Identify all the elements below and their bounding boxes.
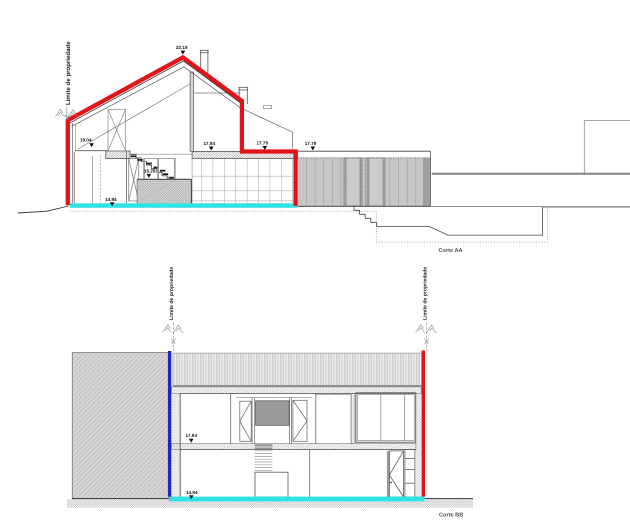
svg-text:17.79: 17.79: [305, 141, 317, 146]
svg-text:Limite de propriedade: Limite de propriedade: [169, 267, 175, 320]
svg-text:14.84: 14.84: [186, 490, 198, 495]
svg-text:Limite de propriedade: Limite de propriedade: [423, 267, 429, 320]
svg-text:22.19: 22.19: [176, 45, 188, 50]
svg-text:Limite de propriedade: Limite de propriedade: [65, 41, 72, 105]
svg-text:19.04: 19.04: [80, 138, 92, 143]
svg-text:16.28: 16.28: [144, 168, 156, 173]
svg-text:17.79: 17.79: [257, 140, 269, 145]
svg-text:Corte AA: Corte AA: [439, 248, 463, 254]
svg-text:Corte BB: Corte BB: [439, 513, 463, 519]
svg-text:17.84: 17.84: [186, 433, 198, 438]
svg-text:17.84: 17.84: [204, 141, 216, 146]
svg-text:14.84: 14.84: [105, 197, 117, 202]
